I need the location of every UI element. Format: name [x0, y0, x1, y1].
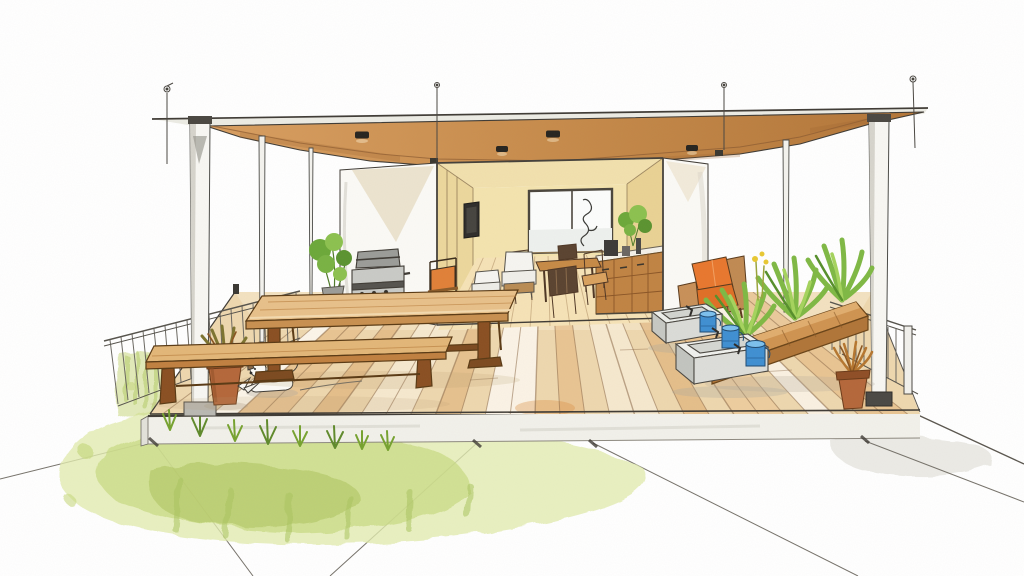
post-base-shoe [866, 392, 892, 406]
sketch-canvas [0, 0, 1024, 576]
illustration-page [0, 0, 1024, 576]
terrace-sketch-figure [0, 0, 1024, 576]
railing-lamp [233, 284, 239, 294]
hanger-bracket [715, 150, 723, 156]
window [525, 189, 616, 253]
